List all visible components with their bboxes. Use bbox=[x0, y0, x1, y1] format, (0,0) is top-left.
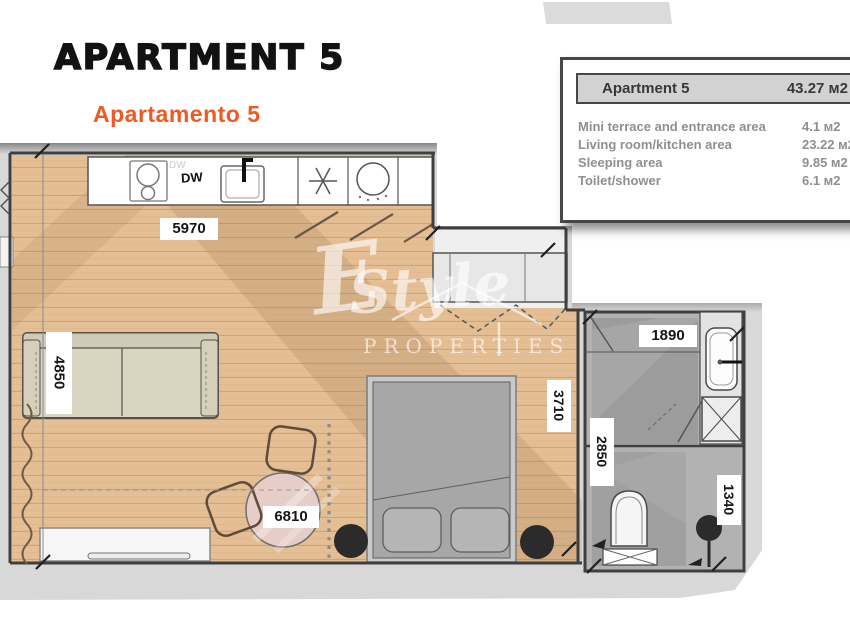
dim-bathroom-width: 1890 bbox=[639, 325, 697, 347]
dim-wc-width: 1340 bbox=[717, 475, 741, 525]
dishwasher-label: DW bbox=[181, 169, 204, 185]
bed bbox=[367, 376, 516, 562]
info-box-total-area: 43.27 м2 bbox=[787, 80, 848, 97]
info-row-value: 6.1 м2 bbox=[802, 172, 841, 190]
info-box-header: Apartment 5 43.27 м2 bbox=[576, 73, 850, 104]
info-row: Sleeping area 9.85 м2 bbox=[578, 154, 850, 172]
pillow bbox=[451, 508, 509, 552]
dishwasher-ghost-label: DW bbox=[169, 160, 186, 171]
info-row: Living room/kitchen area 23.22 м2 bbox=[578, 136, 850, 154]
dim-bathroom-depth: 2850 bbox=[590, 418, 614, 486]
info-box-apartment-name: Apartment 5 bbox=[602, 80, 690, 97]
dim-sleeping-width: 3710 bbox=[547, 380, 571, 432]
washbasin-icon bbox=[706, 328, 742, 390]
dim-sofa-wall: 4850 bbox=[46, 332, 72, 414]
info-row: Mini terrace and entrance area 4.1 м2 bbox=[578, 118, 850, 136]
info-row-label: Sleeping area bbox=[578, 154, 786, 172]
info-box-rows: Mini terrace and entrance area 4.1 м2 Li… bbox=[578, 118, 850, 190]
info-row-label: Toilet/shower bbox=[578, 172, 786, 190]
pillow bbox=[383, 508, 441, 552]
info-row-value: 4.1 м2 bbox=[802, 118, 841, 136]
floorplan-page: APARTMENT 5 Apartamento 5 bbox=[0, 0, 850, 620]
info-row-value: 23.22 м2 bbox=[802, 136, 850, 154]
dim-living-width: 6810 bbox=[263, 506, 319, 528]
stove-icon bbox=[130, 161, 167, 201]
wardrobe bbox=[433, 253, 567, 302]
info-row: Toilet/shower 6.1 м2 bbox=[578, 172, 850, 190]
shower-tray-icon bbox=[702, 397, 741, 441]
area-info-box: Apartment 5 43.27 м2 Mini terrace and en… bbox=[560, 57, 850, 223]
tv-cabinet bbox=[40, 528, 210, 561]
info-row-label: Living room/kitchen area bbox=[578, 136, 786, 154]
info-row-value: 9.85 м2 bbox=[802, 154, 848, 172]
info-row-label: Mini terrace and entrance area bbox=[578, 118, 786, 136]
dim-kitchen-wall: 5970 bbox=[160, 218, 218, 240]
